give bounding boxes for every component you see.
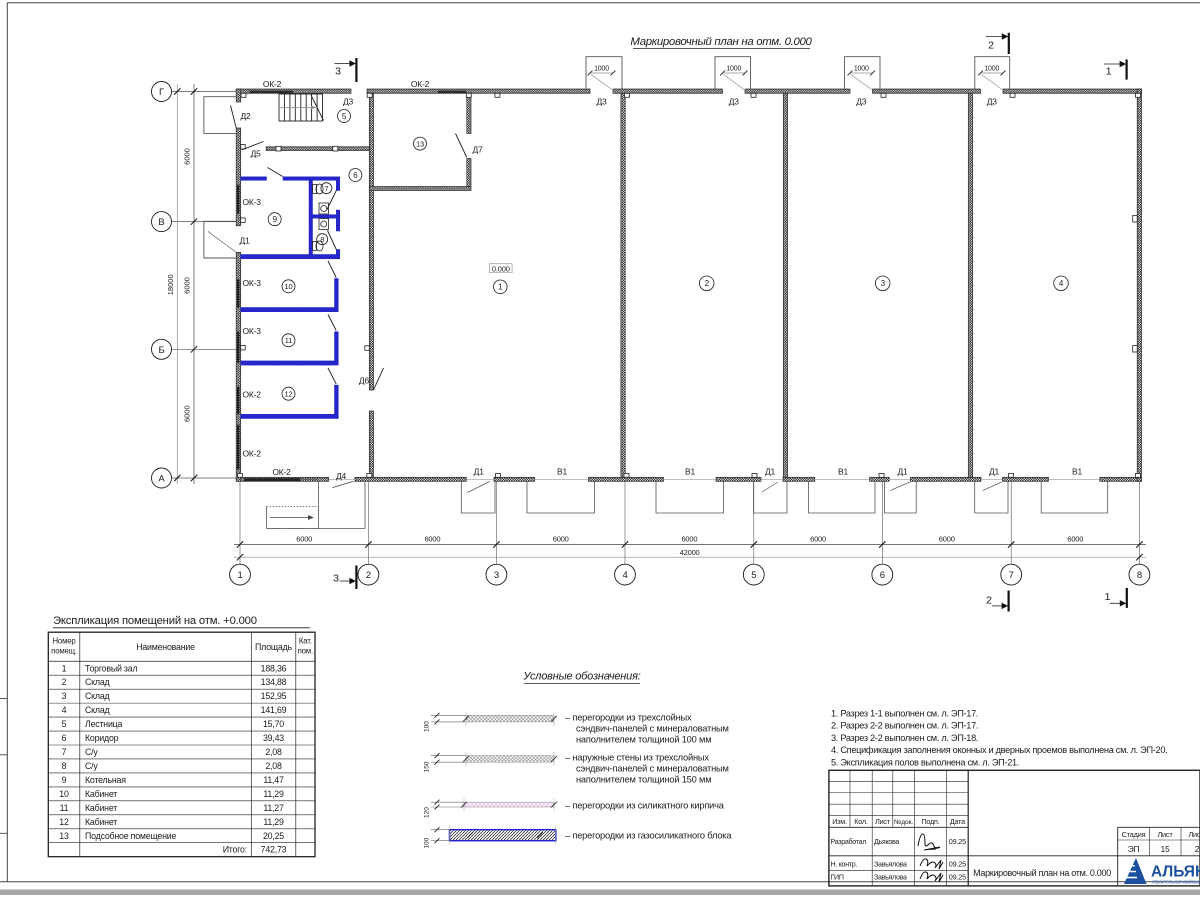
svg-text:6000: 6000 <box>183 277 192 294</box>
svg-text:Д1: Д1 <box>240 236 251 246</box>
svg-text:09.25: 09.25 <box>949 873 966 882</box>
svg-text:42000: 42000 <box>680 548 700 557</box>
svg-text:3: 3 <box>881 279 886 288</box>
svg-text:3: 3 <box>62 691 67 701</box>
svg-text:Дьякова: Дьякова <box>874 838 899 846</box>
svg-text:Б: Б <box>158 345 164 356</box>
svg-text:2: 2 <box>986 595 992 607</box>
svg-text:С/у: С/у <box>85 761 98 771</box>
svg-text:5: 5 <box>751 570 756 581</box>
svg-text:13: 13 <box>59 831 69 841</box>
svg-text:сэндвич-панелей с минераловатн: сэндвич-панелей с минераловатным <box>576 724 729 734</box>
svg-text:Коридор: Коридор <box>85 733 119 743</box>
svg-text:1: 1 <box>1106 66 1112 78</box>
svg-text:В: В <box>158 217 164 228</box>
svg-text:ОК-2: ОК-2 <box>272 467 291 477</box>
svg-text:15: 15 <box>1160 844 1170 854</box>
svg-text:Кабинет: Кабинет <box>85 803 117 813</box>
svg-text:1. Разрез 1-1 выполнен см. л.: 1. Разрез 1-1 выполнен см. л. ЭП-17. <box>831 709 978 719</box>
svg-text:6000: 6000 <box>183 148 192 165</box>
svg-text:6000: 6000 <box>553 535 569 544</box>
svg-text:11: 11 <box>60 803 69 813</box>
svg-text:1: 1 <box>498 283 503 292</box>
svg-text:Д2: Д2 <box>241 111 252 121</box>
svg-text:6: 6 <box>880 570 885 581</box>
svg-text:4: 4 <box>622 570 627 581</box>
svg-text:Наименование: Наименование <box>136 642 195 652</box>
svg-text:742,73: 742,73 <box>261 845 287 855</box>
svg-text:ОК-2: ОК-2 <box>243 390 262 400</box>
svg-text:Д5: Д5 <box>251 149 262 159</box>
svg-text:6000: 6000 <box>939 535 955 544</box>
svg-text:Лестница: Лестница <box>85 719 123 729</box>
svg-text:Склад: Склад <box>85 677 110 687</box>
svg-text:1000: 1000 <box>854 66 869 73</box>
svg-text:4: 4 <box>62 705 67 715</box>
svg-text:ОК-3: ОК-3 <box>243 197 262 207</box>
svg-text:– перегородки из трехслойных: – перегородки из трехслойных <box>565 713 692 723</box>
svg-text:6000: 6000 <box>681 535 697 544</box>
svg-text:ОК-2: ОК-2 <box>243 449 262 459</box>
svg-text:120: 120 <box>424 807 431 818</box>
svg-text:5. Экспликация полов выполнена: 5. Экспликация полов выполнена см. л. ЭП… <box>831 757 1019 767</box>
svg-text:2: 2 <box>1195 844 1200 854</box>
svg-text:помещ.: помещ. <box>51 647 77 656</box>
svg-text:С/у: С/у <box>85 747 98 757</box>
svg-text:Разработал: Разработал <box>831 838 867 846</box>
svg-text:Д3: Д3 <box>987 97 998 107</box>
svg-text:В1: В1 <box>685 467 695 477</box>
svg-text:7: 7 <box>324 184 328 193</box>
svg-text:18000: 18000 <box>166 274 175 295</box>
svg-text:7: 7 <box>1009 570 1014 581</box>
svg-text:Подп.: Подп. <box>921 817 939 826</box>
svg-text:В1: В1 <box>838 467 848 477</box>
svg-text:Кат.: Кат. <box>299 637 312 646</box>
svg-text:Лист: Лист <box>1188 830 1200 839</box>
svg-text:2,08: 2,08 <box>265 747 282 757</box>
svg-text:5: 5 <box>62 719 67 729</box>
svg-text:1: 1 <box>62 663 67 673</box>
svg-text:Д4: Д4 <box>336 471 347 481</box>
svg-text:Д3: Д3 <box>343 97 354 107</box>
svg-text:13: 13 <box>416 139 424 148</box>
svg-text:ГИП: ГИП <box>831 874 844 882</box>
svg-text:Кол.: Кол. <box>854 817 868 826</box>
svg-text:Экспликация помещений на отм.: Экспликация помещений на отм. +0.000 <box>53 615 257 627</box>
svg-text:Д1: Д1 <box>474 467 485 477</box>
svg-text:В1: В1 <box>1072 467 1082 477</box>
svg-text:150: 150 <box>424 761 431 772</box>
svg-text:Завьялова: Завьялова <box>874 874 907 882</box>
svg-text:Д3: Д3 <box>729 97 740 107</box>
svg-text:Д1: Д1 <box>765 467 776 477</box>
svg-text:Маркировочный план на отм. 0.0: Маркировочный план на отм. 0.000 <box>630 36 812 48</box>
svg-text:АЛЬЯНС: АЛЬЯНС <box>1151 864 1200 881</box>
svg-text:ЭП: ЭП <box>1128 844 1140 854</box>
svg-text:11,27: 11,27 <box>263 803 284 813</box>
svg-text:Маркировочный план на отм. 0.0: Маркировочный план на отм. 0.000 <box>973 868 1111 878</box>
svg-text:Номер: Номер <box>53 637 77 646</box>
svg-text:3: 3 <box>333 573 339 585</box>
svg-text:12: 12 <box>285 389 293 398</box>
svg-text:1: 1 <box>1105 591 1111 603</box>
svg-text:188,36: 188,36 <box>261 663 287 673</box>
svg-text:Условные обозначения:: Условные обозначения: <box>522 671 640 683</box>
svg-text:6000: 6000 <box>183 405 192 422</box>
svg-text:11: 11 <box>285 336 292 345</box>
svg-text:Подсобное помещение: Подсобное помещение <box>85 831 176 841</box>
svg-text:11,47: 11,47 <box>263 775 284 785</box>
svg-text:ОК-2: ОК-2 <box>263 79 282 89</box>
svg-text:наполнителем толщиной 100 мм: наполнителем толщиной 100 мм <box>576 735 711 745</box>
svg-text:наполнителем толщиной 150 мм: наполнителем толщиной 150 мм <box>576 775 711 785</box>
svg-text:– перегородки из силикатного к: – перегородки из силикатного кирпича <box>565 801 725 811</box>
svg-text:8: 8 <box>1137 570 1142 581</box>
svg-text:0.000: 0.000 <box>492 264 510 273</box>
svg-text:Д3: Д3 <box>856 97 867 107</box>
svg-text:В1: В1 <box>557 467 567 477</box>
svg-text:100: 100 <box>424 837 431 848</box>
svg-text:134,88: 134,88 <box>261 677 287 687</box>
svg-text:4. Спецификация заполнения око: 4. Спецификация заполнения оконных и две… <box>831 745 1167 755</box>
svg-text:строительная компания: строительная компания <box>1152 880 1200 886</box>
svg-text:10: 10 <box>59 789 69 799</box>
svg-text:09.25: 09.25 <box>949 860 966 869</box>
svg-text:2: 2 <box>366 570 371 581</box>
svg-text:15,70: 15,70 <box>263 719 284 729</box>
svg-text:Д6: Д6 <box>359 376 370 386</box>
svg-text:6000: 6000 <box>424 535 440 544</box>
svg-text:09.25: 09.25 <box>949 837 966 846</box>
svg-text:10: 10 <box>285 282 293 291</box>
svg-text:– наружные стены из трехслойны: – наружные стены из трехслойных <box>565 753 709 763</box>
svg-text:3. Разрез 2-2 выполнен см. л.: 3. Разрез 2-2 выполнен см. л. ЭП-18. <box>831 733 978 743</box>
svg-text:Завьялова: Завьялова <box>874 861 907 869</box>
svg-text:Кабинет: Кабинет <box>85 817 117 827</box>
svg-text:Склад: Склад <box>85 705 110 715</box>
svg-text:3: 3 <box>335 66 341 78</box>
svg-text:Стадия: Стадия <box>1122 830 1146 839</box>
svg-text:9: 9 <box>273 215 278 224</box>
svg-text:Лист: Лист <box>875 817 891 826</box>
svg-text:100: 100 <box>424 721 431 732</box>
svg-text:11,29: 11,29 <box>263 817 284 827</box>
svg-text:2,08: 2,08 <box>265 761 282 771</box>
svg-text:6000: 6000 <box>296 535 312 544</box>
svg-text:Склад: Склад <box>85 691 110 701</box>
svg-text:Д3: Д3 <box>596 97 607 107</box>
svg-text:2. Разрез 2-2 выполнен см. л.: 2. Разрез 2-2 выполнен см. л. ЭП-17. <box>831 721 978 731</box>
svg-text:39,43: 39,43 <box>263 733 284 743</box>
svg-text:141,69: 141,69 <box>261 705 287 715</box>
svg-text:6000: 6000 <box>1067 535 1083 544</box>
svg-text:6: 6 <box>353 171 358 180</box>
svg-text:Итого:: Итого: <box>223 845 247 855</box>
svg-text:1000: 1000 <box>594 66 609 73</box>
svg-text:А: А <box>158 474 165 485</box>
svg-text:2: 2 <box>988 40 994 52</box>
svg-text:6000: 6000 <box>810 535 826 544</box>
svg-text:сэндвич-панелей с минераловатн: сэндвич-панелей с минераловатным <box>576 764 729 774</box>
svg-text:9: 9 <box>62 775 67 785</box>
svg-text:№док.: №док. <box>894 819 913 826</box>
svg-text:Г: Г <box>159 87 164 98</box>
svg-text:1000: 1000 <box>984 66 999 73</box>
svg-text:12: 12 <box>59 817 69 827</box>
svg-text:2: 2 <box>62 677 67 687</box>
svg-text:– перегородки из газосиликатно: – перегородки из газосиликатного блока <box>565 831 732 841</box>
svg-text:20,25: 20,25 <box>263 831 284 841</box>
svg-text:Дата: Дата <box>950 817 965 826</box>
svg-text:152,95: 152,95 <box>261 691 287 701</box>
svg-text:Лист: Лист <box>1157 830 1173 839</box>
svg-text:ОК-2: ОК-2 <box>411 79 430 89</box>
svg-text:2: 2 <box>705 279 710 288</box>
svg-text:Кабинет: Кабинет <box>85 789 117 799</box>
svg-text:7: 7 <box>62 747 67 757</box>
svg-text:Д7: Д7 <box>473 145 484 155</box>
svg-text:Н. контр.: Н. контр. <box>831 861 858 869</box>
svg-text:11,29: 11,29 <box>263 789 284 799</box>
svg-text:1: 1 <box>237 570 242 581</box>
svg-text:Торговый зал: Торговый зал <box>85 663 137 673</box>
svg-text:1000: 1000 <box>726 66 741 73</box>
svg-text:ОК-3: ОК-3 <box>243 278 262 288</box>
svg-text:Изм.: Изм. <box>832 817 847 826</box>
svg-text:Д1: Д1 <box>989 467 1000 477</box>
svg-text:6: 6 <box>62 733 67 743</box>
svg-text:ОК-3: ОК-3 <box>243 326 262 336</box>
svg-text:Котельная: Котельная <box>85 775 126 785</box>
svg-text:8: 8 <box>62 761 67 771</box>
svg-text:Д1: Д1 <box>897 467 908 477</box>
svg-text:пом.: пом. <box>298 647 313 656</box>
svg-text:Площадь: Площадь <box>255 642 293 652</box>
svg-text:3: 3 <box>494 570 499 581</box>
